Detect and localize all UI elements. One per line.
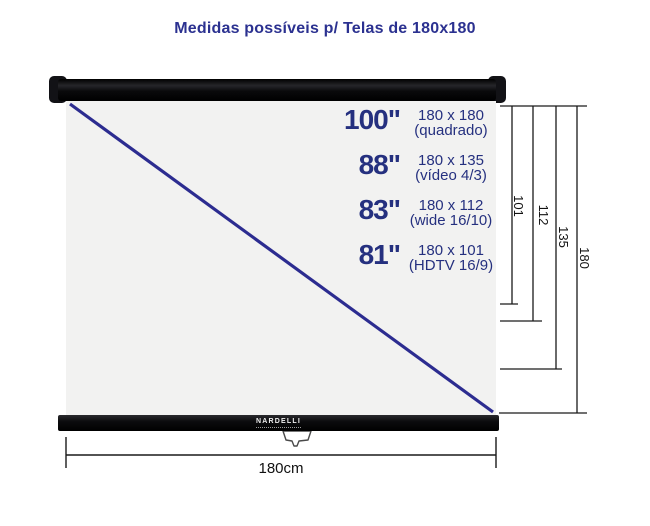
vertical-dimension-lines	[499, 106, 587, 413]
pull-handle	[283, 431, 311, 446]
width-dimension-label: 180cm	[231, 460, 331, 477]
vertical-dimension-label: 180	[577, 238, 591, 278]
vertical-dimension-label: 135	[556, 217, 570, 257]
dimension-lines	[0, 0, 650, 526]
screen-diagonal-line	[70, 104, 493, 412]
screen-bottom-bar: NARDELLI	[58, 415, 499, 431]
diagram-canvas: Medidas possíveis p/ Telas de 180x180 10…	[0, 0, 650, 526]
vertical-dimension-label: 112	[536, 195, 550, 235]
vertical-dimension-label: 101	[511, 186, 525, 226]
brand-logo: NARDELLI	[256, 418, 301, 428]
